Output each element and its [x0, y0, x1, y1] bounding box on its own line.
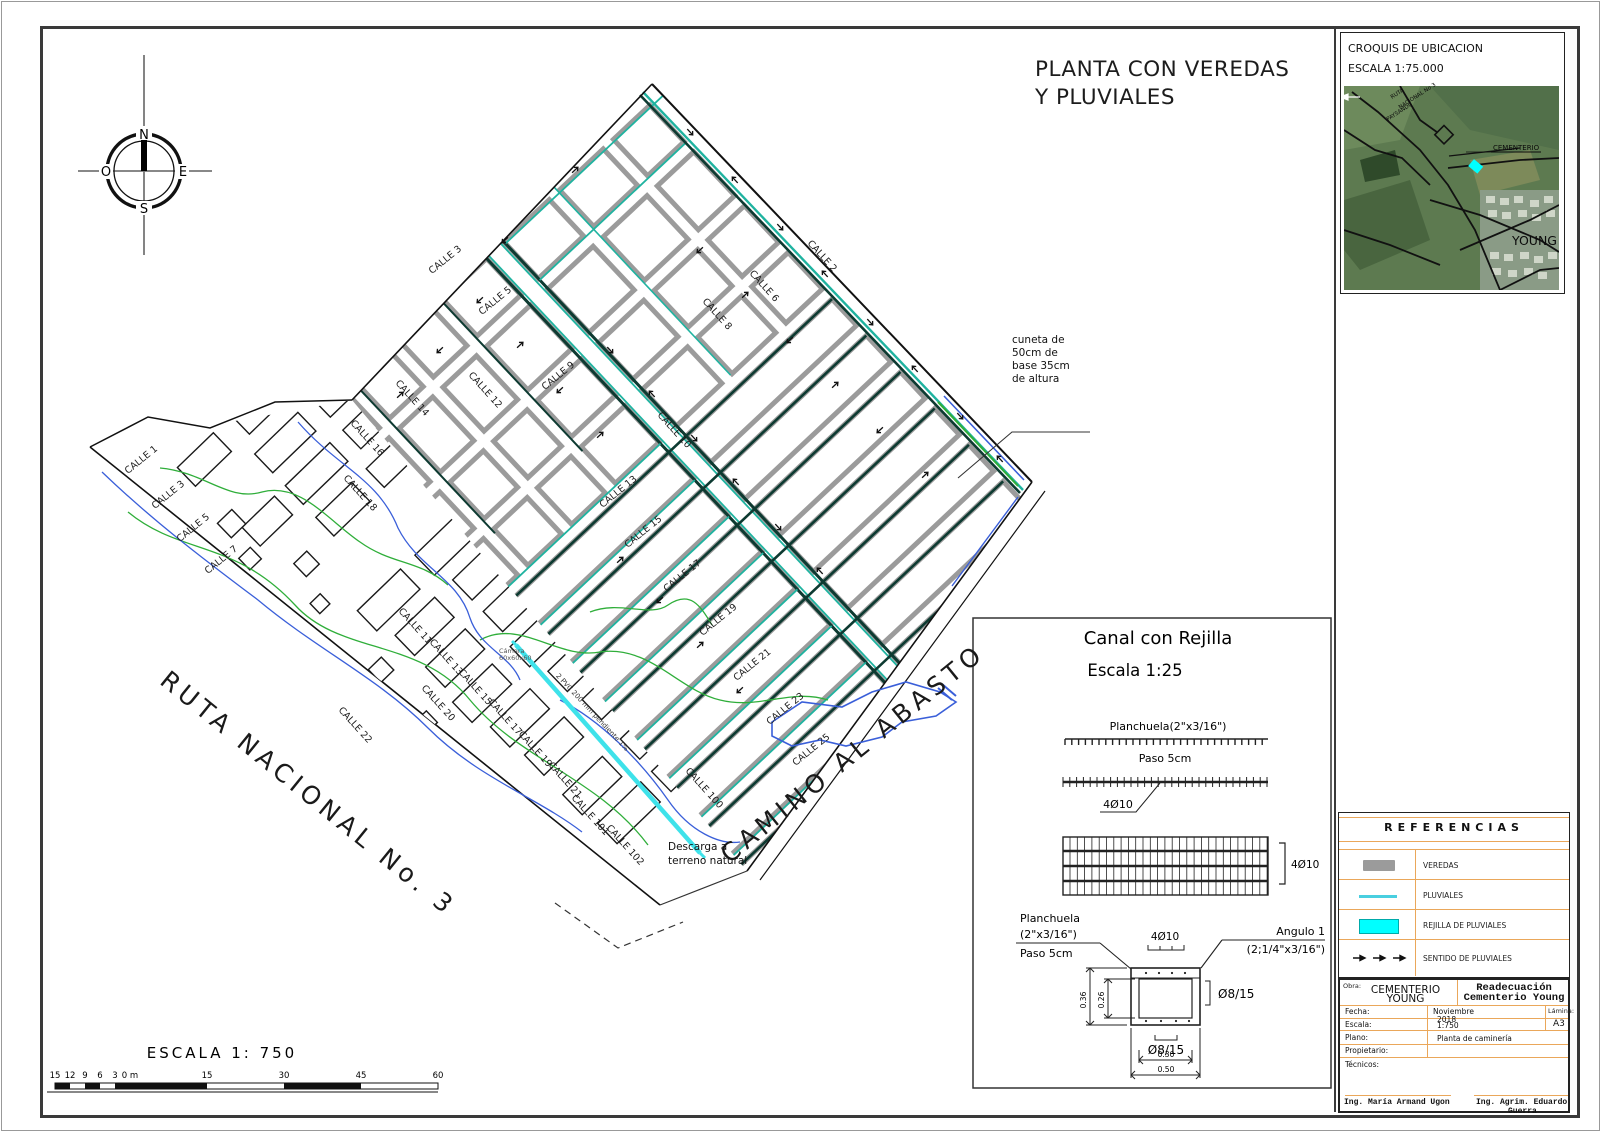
pluviales-swatch	[1359, 895, 1397, 898]
propietario-label: Propietario:	[1345, 1046, 1388, 1055]
legend-item-veredas: VEREDAS	[1339, 849, 1569, 880]
page-title-line2: Y PLUVIALES	[1035, 84, 1289, 112]
plano-value: Planta de caminería	[1437, 1034, 1512, 1043]
page-title: PLANTA CON VEREDAS Y PLUVIALES	[1035, 56, 1289, 112]
references-panel: REFERENCIAS VEREDAS PLUVIALES REJILLA DE…	[1338, 812, 1570, 978]
project-title: Readecuación Cementerio Young	[1458, 984, 1570, 1003]
descarga-note: Descarga a terreno natural	[668, 840, 747, 868]
title-block: Obra: CEMENTERIO YOUNG Readecuación Ceme…	[1338, 978, 1570, 1113]
legend-label: REJILLA DE PLUVIALES	[1423, 921, 1506, 930]
legend-item-sentido: SENTIDO DE PLUVIALES	[1339, 939, 1569, 976]
signature-2b: Guerra	[1508, 1107, 1537, 1116]
panel-divider	[1334, 26, 1336, 1112]
escala-label: Escala:	[1345, 1020, 1372, 1029]
sentido-arrows-icon	[1339, 940, 1415, 976]
camara-note: Cámara 60x60x60	[499, 648, 532, 662]
references-title: REFERENCIAS	[1339, 821, 1569, 834]
legend-item-pluviales: PLUVIALES	[1339, 879, 1569, 910]
escala-value: 1:750	[1437, 1021, 1459, 1030]
veredas-swatch	[1363, 860, 1395, 871]
tecnicos-label: Técnicos:	[1345, 1060, 1379, 1069]
drawing-sheet: PLANTA CON VEREDAS Y PLUVIALES CROQUIS D…	[0, 0, 1600, 1131]
plano-label: Plano:	[1345, 1033, 1368, 1042]
legend-label: VEREDAS	[1423, 861, 1458, 870]
legend-label: SENTIDO DE PLUVIALES	[1423, 954, 1512, 963]
lamina-label: Lámina:	[1548, 1007, 1574, 1015]
page-title-line1: PLANTA CON VEREDAS	[1035, 56, 1289, 84]
croquis-title: CROQUIS DE UBICACION	[1348, 42, 1483, 55]
signature-2: Ing. Agrim. Eduardo	[1476, 1098, 1567, 1107]
references-rule-top	[1339, 817, 1569, 818]
obra-value: CEMENTERIO YOUNG	[1358, 986, 1453, 1004]
fecha-label: Fecha:	[1345, 1007, 1370, 1016]
lamina-value: A3	[1553, 1019, 1565, 1029]
rejilla-swatch	[1359, 919, 1399, 934]
croquis-scale: ESCALA 1:75.000	[1348, 62, 1444, 75]
signature-1: Ing. María Armand Ugon	[1344, 1098, 1450, 1107]
cuneta-note: cuneta de 50cm de base 35cm de altura	[1012, 334, 1070, 386]
legend-item-rejilla: REJILLA DE PLUVIALES	[1339, 909, 1569, 940]
legend-label: PLUVIALES	[1423, 891, 1463, 900]
references-rule-bottom	[1339, 841, 1569, 842]
